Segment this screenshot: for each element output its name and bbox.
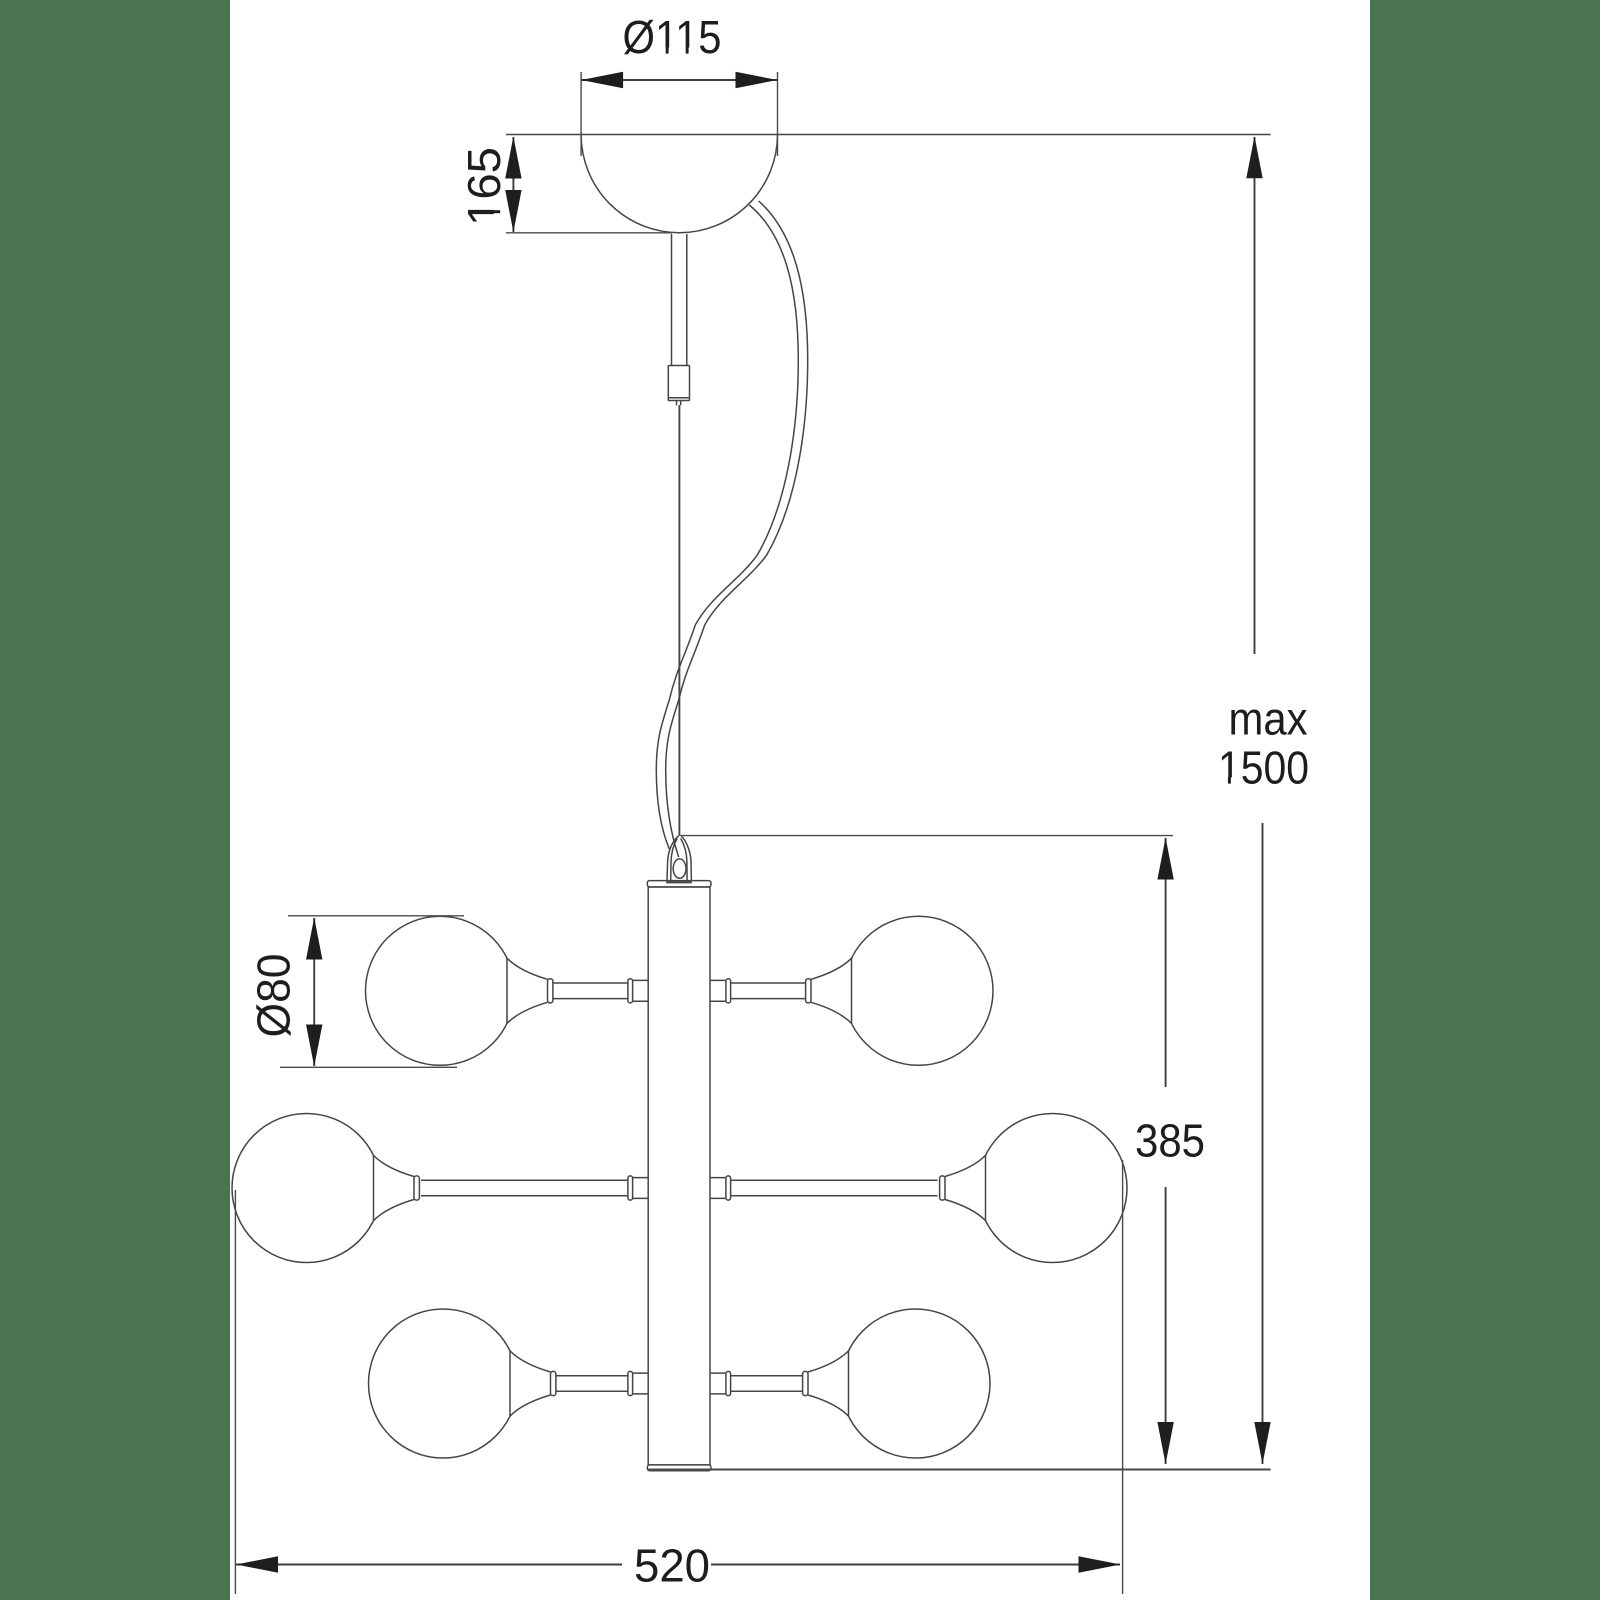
svg-text:Ø80: Ø80: [248, 954, 300, 1038]
svg-text:385: 385: [1135, 1115, 1205, 1167]
svg-text:520: 520: [634, 1540, 710, 1592]
svg-text:max: max: [1229, 692, 1308, 744]
